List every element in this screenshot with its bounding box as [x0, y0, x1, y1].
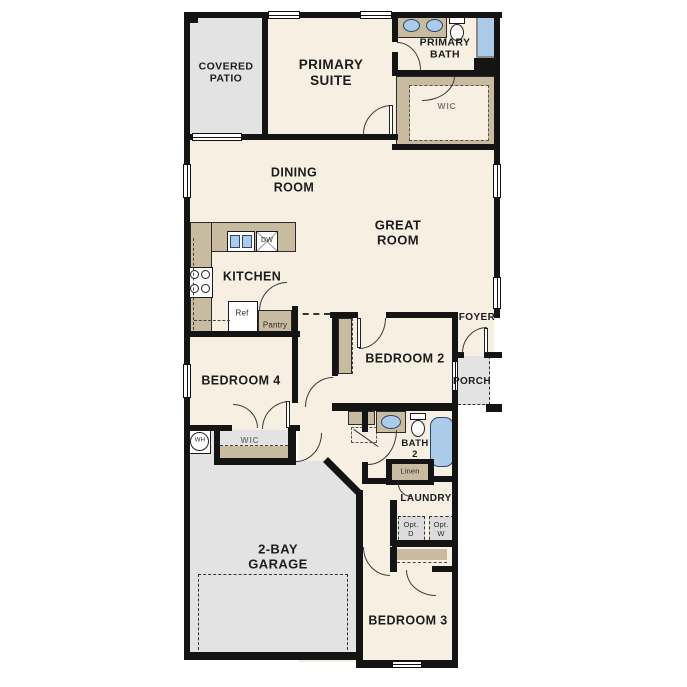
bedroom4-wic-rod-dash [220, 445, 288, 446]
bedroom4-label: BEDROOM 4 [201, 374, 280, 389]
window-bedroom4-left [183, 364, 191, 398]
wall-bath2-bottom-b [430, 476, 454, 482]
front-door-leaf [484, 328, 488, 353]
window-suite-top-1 [268, 11, 300, 19]
kitchen-sink-basin-left [230, 235, 240, 248]
bedroom3-label: BEDROOM 3 [368, 614, 447, 629]
stove-burner-2 [201, 270, 210, 279]
optional-dryer-label: Opt. D [404, 521, 419, 539]
wall-patio-corner [189, 15, 198, 23]
bath2-toilet-bowl [411, 420, 425, 437]
pantry-label: Pantry [263, 320, 287, 329]
wall-wic-chunk [474, 58, 500, 72]
window-great-right-2 [493, 277, 501, 309]
kitchen-label: KITCHEN [223, 270, 281, 285]
wall-garage-bottom [184, 652, 362, 660]
kitchen-counter-dash-v [193, 238, 194, 330]
bath2-toilet-tank [410, 413, 426, 420]
window-dining-left [183, 164, 191, 198]
window-great-right-1 [493, 164, 501, 198]
bedroom2-closet-shelf [338, 318, 352, 374]
refrigerator-label: Ref [235, 308, 248, 317]
wall-wic4-bottom [214, 458, 296, 465]
covered-patio-label: COVERED PATIO [199, 61, 254, 86]
stove-burner-4 [201, 284, 210, 293]
wall-bath2-band [332, 403, 458, 411]
floor-plan: COVERED PATIO PRIMARY SUITE PRIMARY BATH… [0, 0, 687, 687]
window-suite-top-2 [360, 11, 392, 19]
bedroom4-door-leaf [286, 401, 290, 428]
porch-label: PORCH [453, 376, 491, 388]
bedroom4-wic-label: WIC [241, 435, 260, 445]
stove-burner-3 [190, 284, 199, 293]
bath2-sink [381, 415, 401, 429]
dishwasher-label: DW [261, 237, 273, 245]
great-room-label: GREAT ROOM [375, 218, 422, 249]
wall-bed2-left-upper [332, 318, 338, 376]
wall-suite-bath-a [392, 12, 398, 42]
bedroom2-door-leaf [357, 318, 361, 348]
bedroom2-closet-rod-dash [352, 318, 353, 374]
linen-label: Linen [400, 468, 419, 477]
water-heater-label: WH [195, 437, 205, 444]
garage-label: 2-BAY GARAGE [248, 542, 307, 573]
wall-top [184, 12, 502, 18]
wall-bed4-top [184, 331, 300, 337]
wall-bed3-closet-left [390, 547, 397, 572]
primary-suite-door-leaf [389, 105, 393, 135]
primary-bath-sink-right [426, 19, 443, 32]
wall-great-bed2-b [386, 312, 458, 318]
bedroom2-label: BEDROOM 2 [365, 352, 444, 367]
wall-laundry-bed3 [392, 540, 452, 547]
refrigerator-box [228, 301, 258, 335]
primary-bath-label: PRIMARY BATH [420, 37, 471, 62]
wall-wic-bottom [392, 144, 500, 150]
kitchen-sink-basin-right [242, 235, 252, 248]
wall-patio-suite [262, 12, 268, 140]
window-patio-bottom [192, 133, 242, 141]
primary-bath-sink-left [403, 19, 420, 32]
wall-right-lower [452, 413, 458, 668]
wall-porch-corner [486, 404, 502, 412]
stove-burner-1 [190, 270, 199, 279]
window-bedroom3-bottom [392, 661, 422, 668]
laundry-label: LAUNDRY [400, 493, 451, 505]
primary-wic-shelf-dashes [409, 85, 489, 141]
garage-door-dash [198, 574, 348, 650]
wall-bed4-right [292, 337, 298, 403]
wall-bath2-left-up [362, 411, 368, 432]
foyer-label: FOYER [459, 312, 495, 324]
bedroom4-wic-shelf [220, 446, 288, 458]
bath2-label: BATH 2 [401, 438, 428, 460]
optional-washer-label: Opt. W [434, 521, 449, 539]
dining-room-label: DINING ROOM [271, 165, 317, 195]
bedroom3-closet-rod-dash [397, 562, 447, 563]
wall-pantry-right [292, 306, 298, 337]
wall-bath2-bottom-a [362, 478, 390, 484]
wall-garage-right [356, 490, 363, 662]
kitchen-counter-dash-h [194, 320, 230, 321]
bedroom3-closet-shelf [397, 549, 447, 560]
primary-wic-label: WIC [438, 101, 457, 111]
primary-suite-label: PRIMARY SUITE [299, 57, 364, 89]
